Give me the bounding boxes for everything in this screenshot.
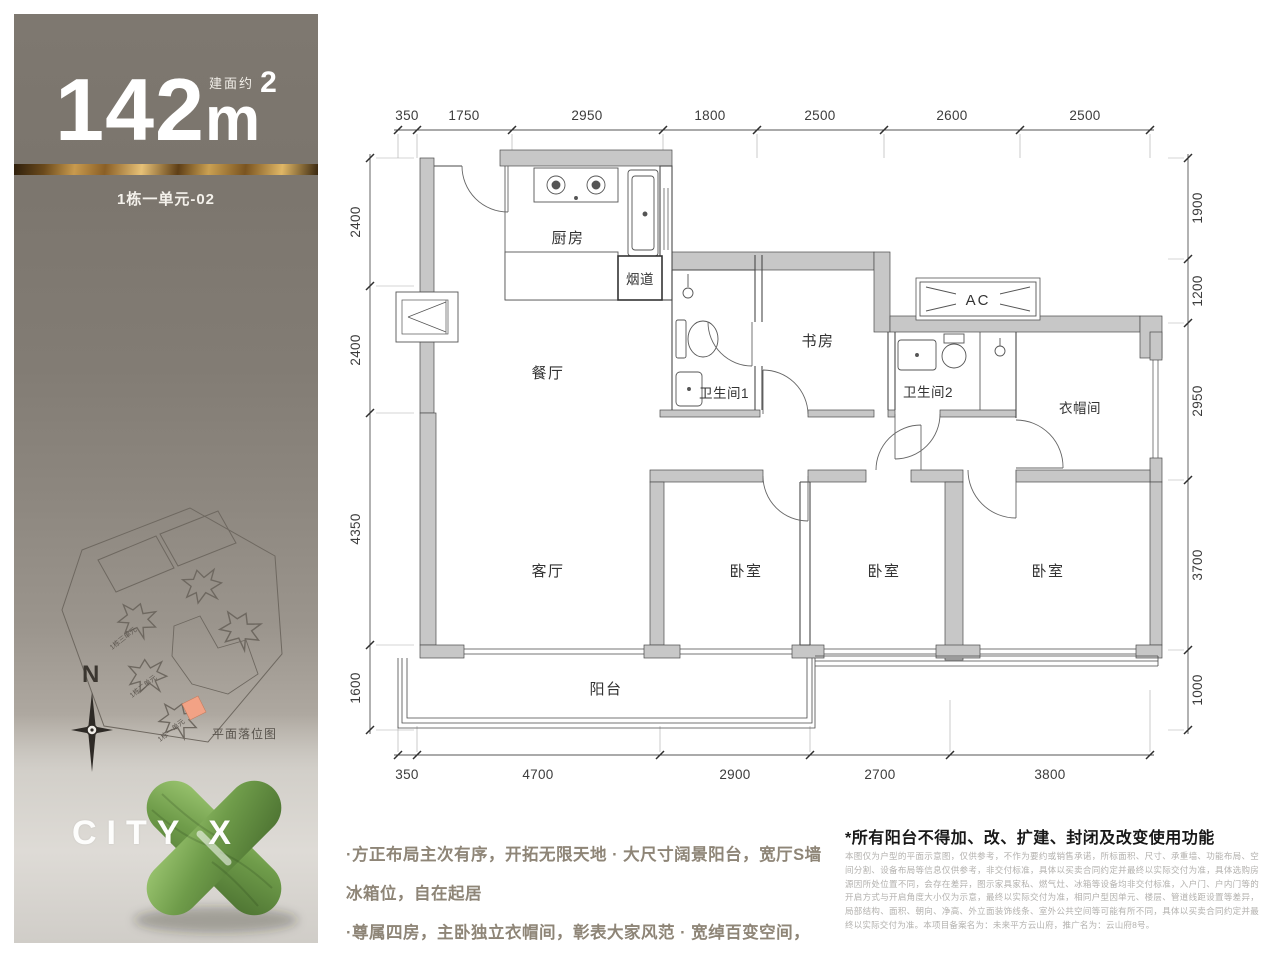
toilet-bowl (688, 321, 718, 357)
walls (420, 150, 1162, 660)
dim-bottom: 4700 (522, 767, 553, 782)
dim-top: 1800 (694, 108, 725, 123)
room-label-dining: 餐厅 (531, 365, 564, 382)
dim-bottom: 2700 (864, 767, 895, 782)
room-label-living: 客厅 (531, 563, 564, 580)
dim-left: 4350 (348, 513, 363, 544)
dimension-labels: 350 1750 2950 1800 2500 2600 2500 350 47… (348, 108, 1205, 782)
room-label-study: 书房 (801, 333, 834, 350)
dim-top: 2950 (571, 108, 602, 123)
dim-right: 3700 (1190, 549, 1205, 580)
toilet-tank (676, 320, 686, 358)
room-label-kitchen: 厨房 (551, 230, 584, 247)
dim-top: 350 (395, 108, 418, 123)
room-label-bath2: 卫生间2 (903, 385, 953, 400)
dim-top: 2600 (936, 108, 967, 123)
toilet-tank (944, 334, 964, 343)
room-label-flue: 烟道 (626, 272, 654, 287)
dim-bottom: 2900 (719, 767, 750, 782)
dim-bottom: 350 (395, 767, 418, 782)
dim-right: 1900 (1190, 192, 1205, 223)
dim-top: 1750 (448, 108, 479, 123)
dim-right: 1000 (1190, 674, 1205, 705)
room-label-balcony: 阳台 (589, 681, 622, 698)
disclaimer-title: *所有阳台不得加、改、扩建、封闭及改变使用功能 (845, 824, 1265, 848)
dim-left: 2400 (348, 334, 363, 365)
logo-wordmark: CITY X (72, 814, 241, 853)
dim-top: 2500 (1069, 108, 1100, 123)
bedroom2-door (876, 425, 921, 470)
bath2-door (895, 414, 940, 459)
shower-head (995, 346, 1005, 356)
selling-point-line: ·方正布局主次有序，开拓无限天地 · 大尺寸阔景阳台，宽厅S墙冰箱位，自在起居 (346, 836, 824, 914)
toilet-bowl (942, 344, 966, 368)
selling-points: ·方正布局主次有序，开拓无限天地 · 大尺寸阔景阳台，宽厅S墙冰箱位，自在起居 … (346, 836, 824, 957)
dim-right: 2950 (1190, 385, 1205, 416)
dimension-ticks (366, 126, 1192, 759)
equipment-bay (396, 292, 458, 342)
cloakroom-door (1016, 420, 1063, 468)
kitchen-counter (505, 252, 618, 300)
entry-door (462, 166, 508, 212)
study-door (763, 370, 808, 414)
room-label-bedroom: 卧室 (867, 563, 900, 580)
dim-top: 2500 (804, 108, 835, 123)
room-label-cloakroom: 衣帽间 (1059, 401, 1101, 416)
selling-point-line: ·尊属四房，主卧独立衣帽间，彰表大家风范 · 宽绰百变空间，动静分区，生活自在流… (346, 914, 824, 957)
dim-left: 1600 (348, 672, 363, 703)
dim-right: 1200 (1190, 275, 1205, 306)
bedroom3-door (968, 470, 1016, 518)
room-label-ac: AC (966, 292, 991, 309)
partitions-windows (398, 166, 1158, 728)
bedroom1-door (763, 476, 808, 521)
disclaimer-body: 本图仅为户型的平面示意图，仅供参考，不作为要约或销售承诺，所标面积、尺寸、承重墙… (845, 850, 1259, 933)
door-swings (462, 166, 1063, 521)
room-label-bedroom: 卧室 (1031, 563, 1064, 580)
dim-left: 2400 (348, 206, 363, 237)
extension-lines (376, 134, 1184, 752)
room-label-bedroom: 卧室 (729, 563, 762, 580)
floorplan-poster: 142建面约m2 1栋一单元-02 1栋 (0, 0, 1280, 957)
dim-bottom: 3800 (1034, 767, 1065, 782)
fixtures (396, 168, 1040, 406)
room-label-bath1: 卫生间1 (699, 386, 749, 401)
shower-head (683, 288, 693, 298)
